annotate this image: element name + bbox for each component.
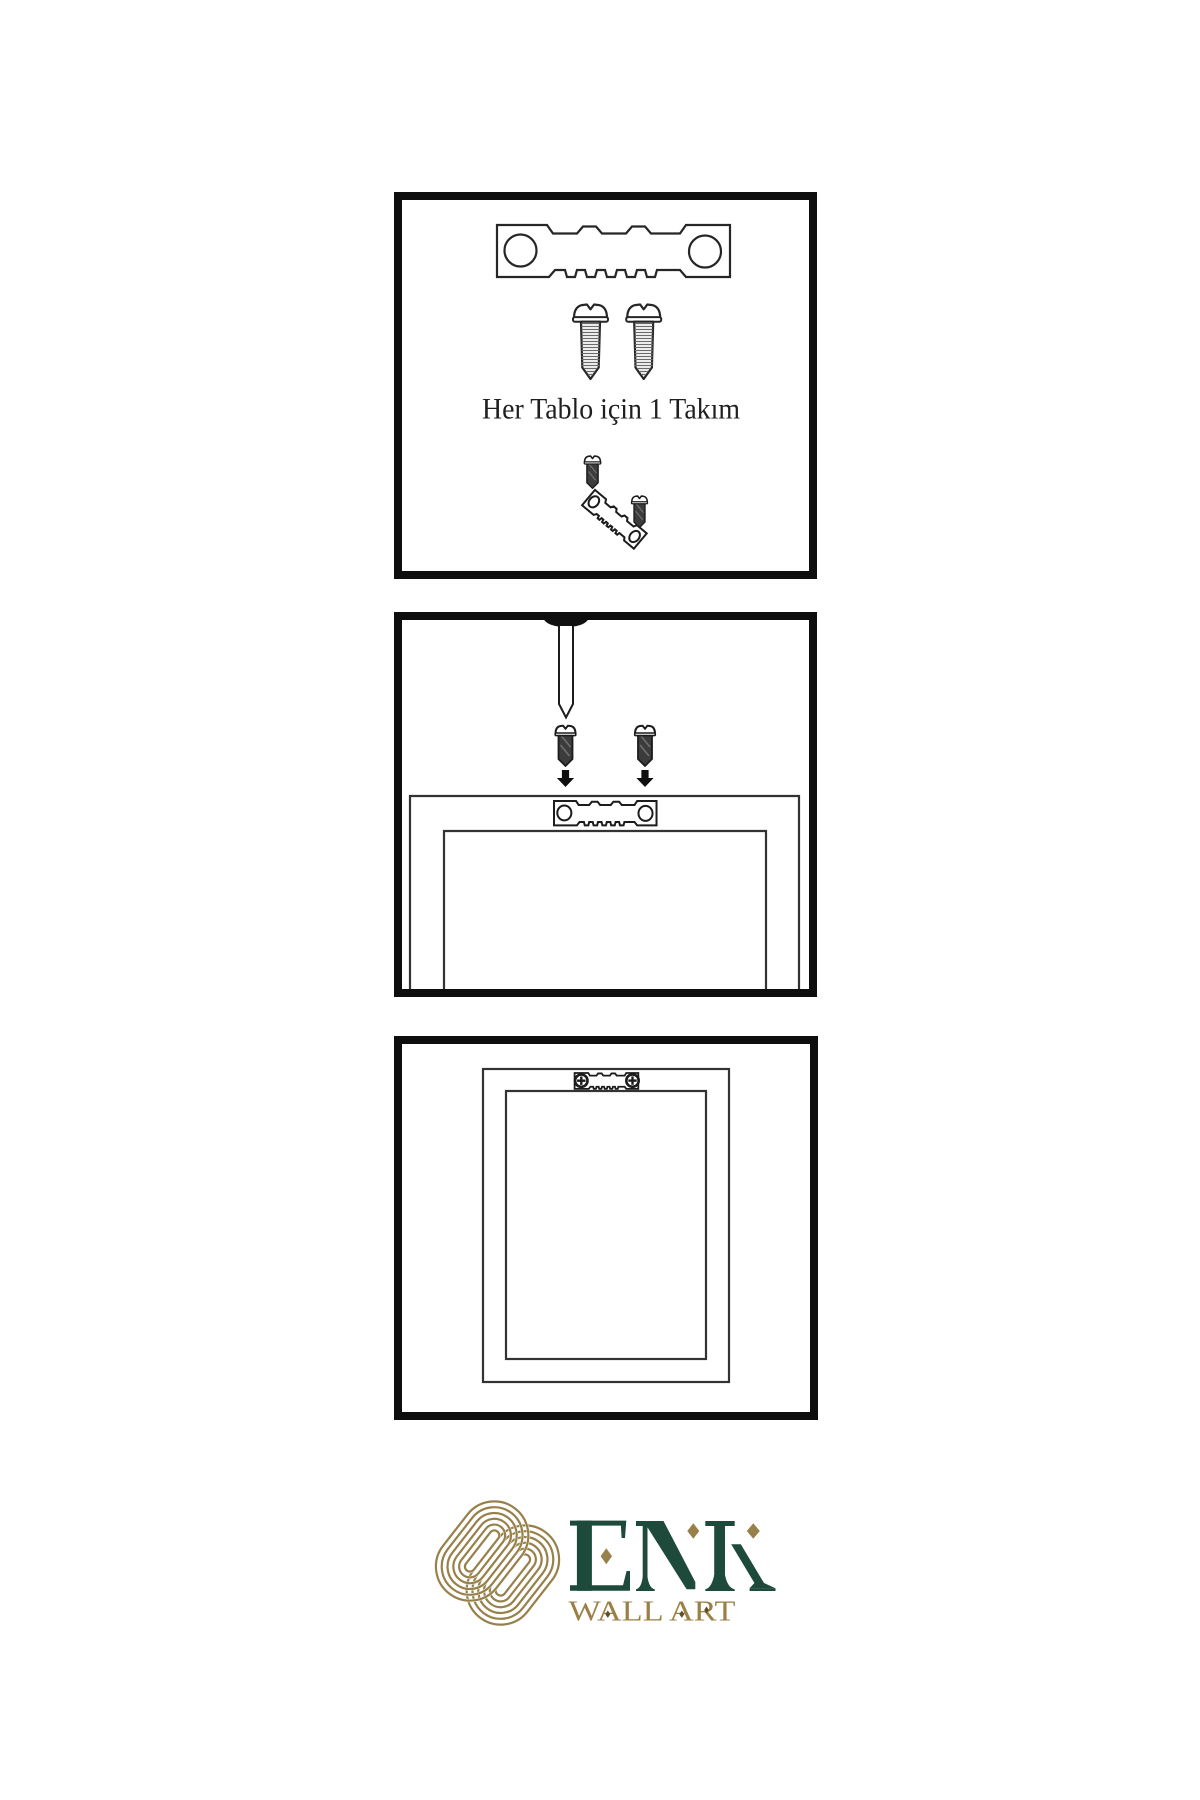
svg-text:Her Tablo için 1 Takım: Her Tablo için 1 Takım [482,394,740,426]
svg-text:WALL ART: WALL ART [569,1596,736,1628]
